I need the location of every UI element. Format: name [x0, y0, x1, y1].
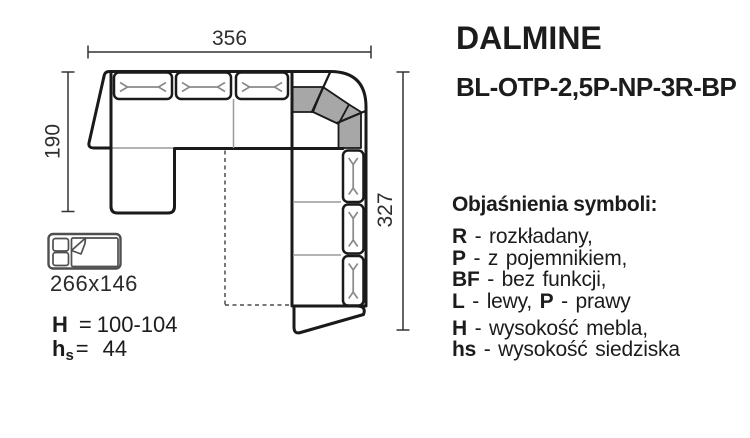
dimension-width-label: 356	[212, 27, 247, 50]
legend-symbol: hs	[452, 338, 476, 361]
legend-symbol: L	[452, 290, 465, 313]
legend-meaning: - lewy,	[465, 290, 540, 313]
left-armrest	[89, 72, 113, 149]
equals-sign: =	[79, 312, 92, 337]
legend-item-h: H - wysokość mebla,	[452, 318, 748, 340]
height-symbol: H	[52, 312, 68, 337]
legend-heading: Objaśnienia symboli:	[452, 193, 748, 217]
legend-meaning: - prawy	[553, 290, 630, 313]
seat-height-spec: hs=44	[52, 338, 127, 360]
bottom-armrest	[294, 306, 364, 333]
seat-height-subscript: s	[65, 347, 73, 364]
seat-height-symbol: h	[52, 336, 65, 361]
legend-symbol: P	[540, 290, 554, 313]
height-value: 100-104	[97, 312, 178, 337]
symbols-legend: Objaśnienia symboli: R - rozkładany, P -…	[452, 193, 748, 361]
legend-symbol: H	[452, 317, 467, 340]
legend-item-hs: hs - wysokość siedziska	[452, 339, 748, 361]
legend-meaning: - wysokość siedziska	[476, 338, 680, 361]
legend-item-bf: BF - bez funkcji,	[452, 269, 748, 291]
bed-footprint-dashed-outline	[225, 151, 291, 306]
legend-item-r: R - rozkładany,	[452, 226, 748, 248]
legend-symbol: BF	[452, 268, 480, 291]
sofa-bed-icon	[49, 234, 121, 269]
legend-meaning: - rozkładany,	[467, 225, 593, 248]
product-title: DALMINE	[456, 22, 602, 54]
dimension-right-depth-label: 327	[374, 192, 397, 227]
legend-meaning: - wysokość mebla,	[467, 317, 648, 340]
furniture-height-spec: H=100-104	[52, 314, 178, 336]
legend-item-p: P - z pojemnikiem,	[452, 248, 748, 270]
legend-item-lp: L - lewy, P - prawy	[452, 291, 748, 313]
furniture-top-view-diagram: 356 190 327	[0, 0, 440, 438]
legend-symbol: R	[452, 225, 467, 248]
product-sheet: { "header": { "title": "DALMINE", "model…	[0, 0, 750, 438]
dimension-left-depth-label: 190	[42, 124, 65, 159]
legend-meaning: - z pojemnikiem,	[466, 247, 627, 270]
model-code: BL-OTP-2,5P-NP-3R-BP	[456, 74, 736, 100]
dimension-right-depth	[397, 72, 410, 330]
bed-size-label: 266x146	[50, 273, 138, 295]
seat-height-value: 44	[103, 336, 127, 361]
legend-meaning: - bez funkcji,	[480, 268, 607, 291]
equals-sign: =	[76, 336, 89, 361]
top-backrest-cushions	[114, 73, 288, 100]
legend-symbol: P	[452, 247, 466, 270]
